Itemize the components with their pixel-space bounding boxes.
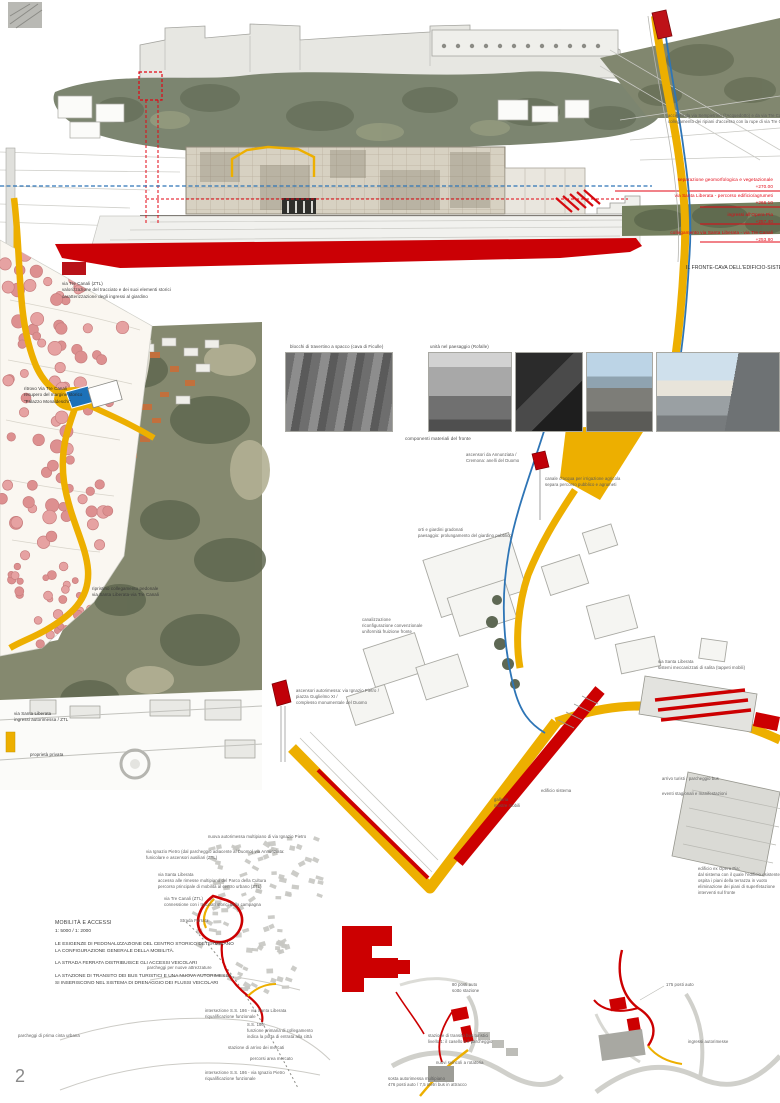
photo-front-render-sky — [586, 352, 653, 432]
mobility-line: LA STAZIONE DI TRANSITO DEI BUS TURISTIC… — [55, 973, 234, 980]
mobility-title: MOBILITÀ E ACCESSI — [55, 920, 234, 928]
yellow-wedge — [560, 424, 648, 500]
mobility-line: SI INSERISCONO NEL SISTEMA DI DRENAGGIO … — [55, 980, 234, 987]
mobility-text-block: MOBILITÀ E ACCESSI 1: 5000 / 1: 2000 LE … — [55, 920, 234, 987]
axonometric-diagram — [272, 424, 780, 888]
station-block — [428, 1066, 454, 1082]
mobility-scale: 1: 5000 / 1: 2000 — [55, 928, 234, 935]
photo-front-render-dark — [515, 352, 583, 432]
garage-entry-marker — [6, 732, 15, 752]
red-flag-marker — [272, 680, 291, 706]
gallery-red-stripe — [318, 770, 428, 878]
mobility-line: LA STRADA FERRATA DISTRIBUISCE GLI ACCES… — [55, 960, 234, 967]
legend-red-swatch — [62, 262, 86, 275]
photo-hill-town — [428, 352, 512, 432]
photo-fragment — [8, 2, 42, 28]
photo-travertine-quarry — [285, 352, 393, 432]
red-flag-marker — [532, 451, 549, 470]
station-footprint-diagram — [342, 926, 562, 1096]
red-building-footprint — [342, 926, 398, 992]
garage-access-diagram — [594, 950, 780, 1092]
site-plan-aerial — [0, 198, 270, 790]
presentation-board: accesso da via Sempietrino (l'Acquedotto… — [0, 0, 780, 1103]
yellow-v-path — [292, 722, 556, 888]
red-ramp — [458, 690, 600, 862]
photo-front-render-wide — [656, 352, 780, 432]
mobility-line: LA CONFIGURAZIONE GENERALE DELLA MOBILIT… — [55, 948, 234, 955]
aqueduct-arcade — [432, 30, 618, 56]
mobility-line: LE ESIGENZE DI PEDONALIZZAZIONE DEL CENT… — [55, 941, 234, 948]
page-number: 2 — [15, 1066, 25, 1087]
